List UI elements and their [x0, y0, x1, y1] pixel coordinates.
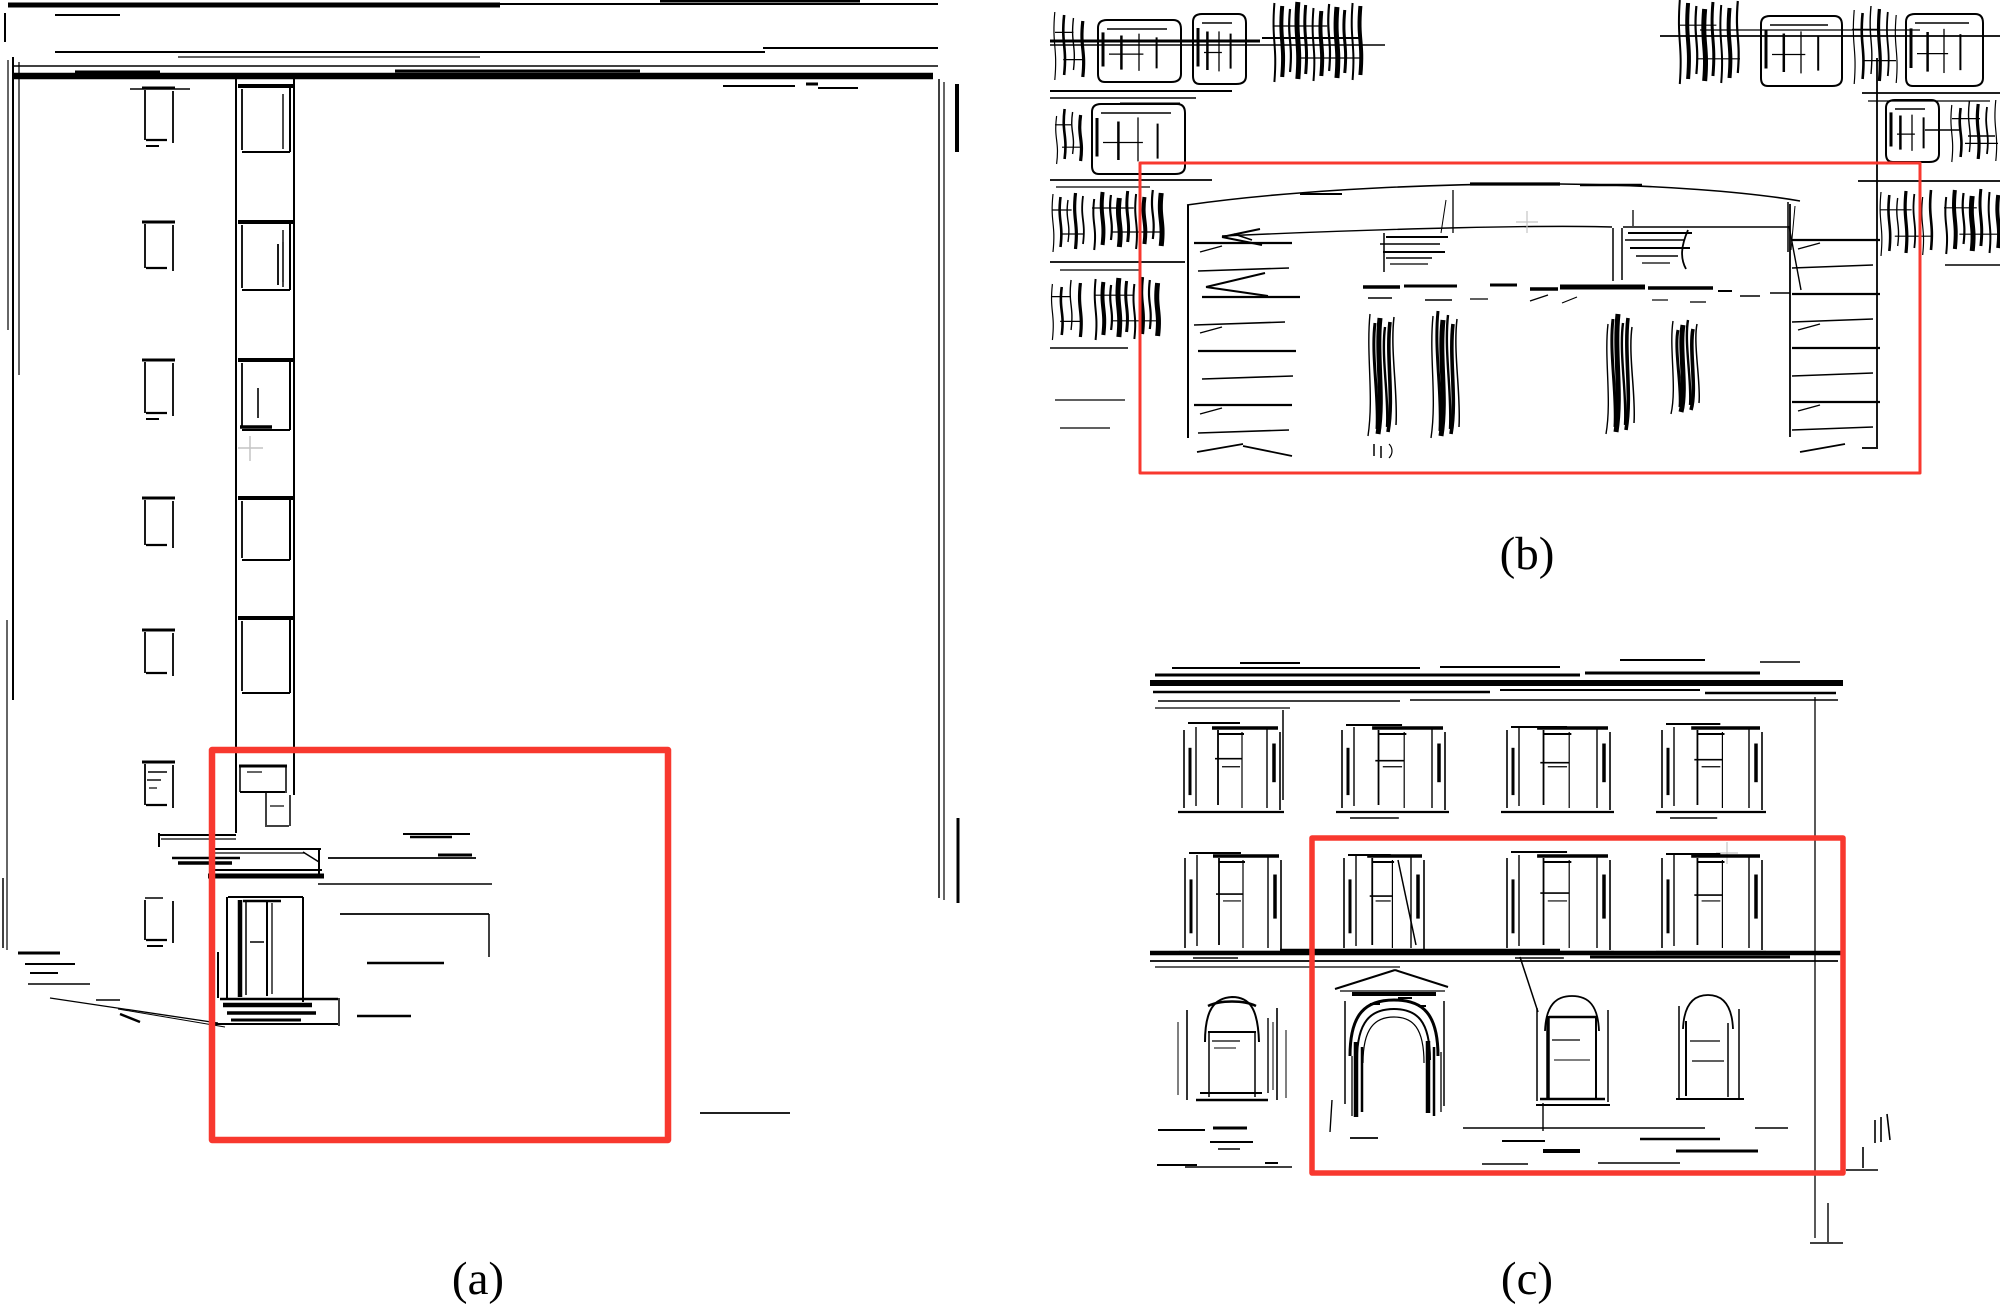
edge-sketch-figure — [0, 0, 2000, 1307]
subfigure-label-a: (a) — [452, 1256, 504, 1303]
detection-box-a — [212, 750, 668, 1140]
edge-sketch-b — [1050, 0, 2000, 458]
edge-sketch-c — [1150, 660, 1890, 1243]
figure-canvas: (a) (b) (c) — [0, 0, 2000, 1307]
subfigure-label-c: (c) — [1501, 1256, 1553, 1303]
subfigure-label-b: (b) — [1500, 531, 1555, 578]
detection-box-c — [1312, 838, 1843, 1173]
detection-box-b — [1140, 163, 1920, 473]
edge-sketch-a — [3, 1, 958, 1113]
